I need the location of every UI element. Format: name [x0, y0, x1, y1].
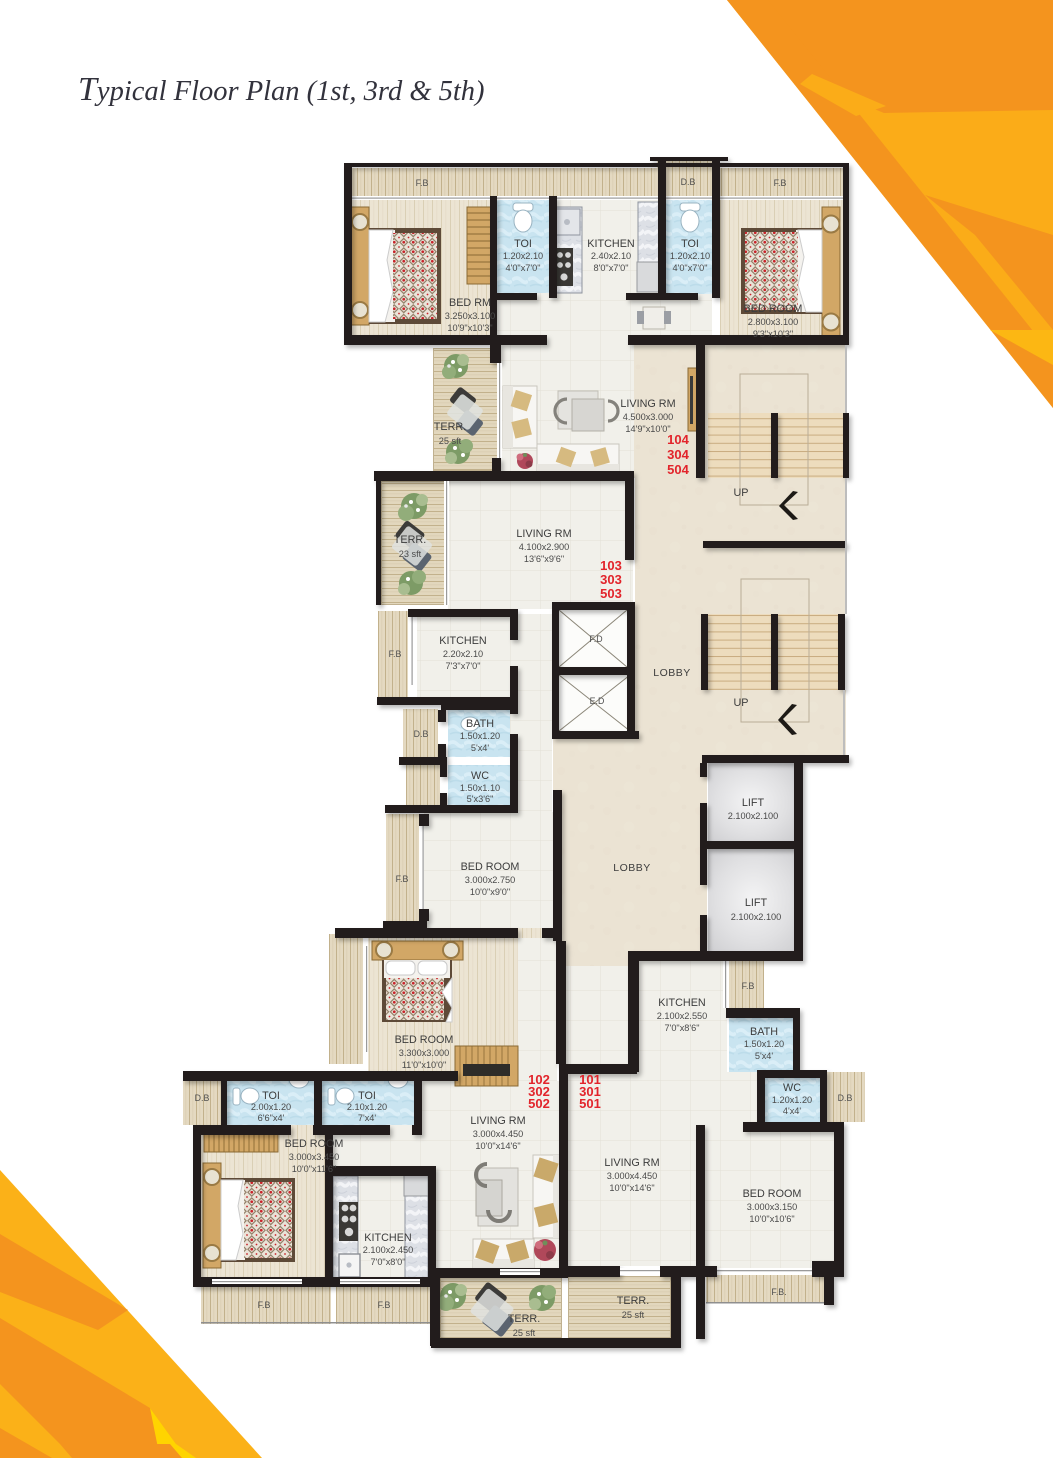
svg-text:3.000x3.450: 3.000x3.450	[289, 1152, 340, 1162]
svg-text:1.50x1.20: 1.50x1.20	[460, 731, 500, 741]
svg-text:TOI: TOI	[681, 238, 699, 250]
svg-text:501: 501	[579, 1096, 601, 1111]
svg-text:1.20x1.20: 1.20x1.20	[772, 1095, 812, 1105]
svg-text:D.B: D.B	[681, 177, 696, 187]
svg-text:BED ROOM: BED ROOM	[743, 1188, 802, 1200]
svg-text:103: 103	[600, 558, 622, 573]
svg-text:303: 303	[600, 572, 622, 587]
svg-text:1.20x2.10: 1.20x2.10	[503, 251, 543, 261]
svg-text:2.40x2.10: 2.40x2.10	[591, 251, 631, 261]
svg-text:TERR.: TERR.	[394, 534, 426, 546]
svg-text:KITCHEN: KITCHEN	[439, 635, 486, 647]
svg-text:2.10x1.20: 2.10x1.20	[347, 1102, 387, 1112]
svg-text:2.100x2.100: 2.100x2.100	[728, 811, 779, 821]
svg-text:LIVING RM: LIVING RM	[620, 398, 675, 410]
svg-text:F.B.: F.B.	[771, 1287, 786, 1297]
svg-text:E.D: E.D	[590, 696, 605, 706]
svg-text:3.300x3.000: 3.300x3.000	[399, 1048, 450, 1058]
svg-text:8'0"x7'0": 8'0"x7'0"	[593, 263, 628, 273]
svg-text:23 sft: 23 sft	[399, 549, 422, 559]
svg-text:10'0"x14'6": 10'0"x14'6"	[475, 1141, 520, 1151]
svg-text:7'x4': 7'x4'	[358, 1113, 377, 1123]
svg-text:2.00x1.20: 2.00x1.20	[251, 1102, 291, 1112]
svg-text:25 sft: 25 sft	[513, 1328, 536, 1338]
svg-text:BED ROOM: BED ROOM	[395, 1034, 454, 1046]
svg-text:3.000x4.450: 3.000x4.450	[473, 1129, 524, 1139]
svg-text:2.800x3.100: 2.800x3.100	[748, 317, 799, 327]
svg-text:KITCHEN: KITCHEN	[587, 238, 634, 250]
svg-text:2.100x2.550: 2.100x2.550	[657, 1011, 708, 1021]
svg-text:TOI: TOI	[514, 238, 532, 250]
svg-text:7'0"x8'0": 7'0"x8'0"	[370, 1257, 405, 1267]
svg-text:F.B: F.B	[258, 1300, 271, 1310]
svg-text:11'0"x10'0": 11'0"x10'0"	[402, 1060, 447, 1070]
svg-text:D.B: D.B	[838, 1093, 853, 1103]
svg-text:10'0"x9'0": 10'0"x9'0"	[470, 887, 510, 897]
svg-text:3.000x3.150: 3.000x3.150	[747, 1202, 798, 1212]
svg-text:502: 502	[528, 1096, 550, 1111]
svg-text:F.B: F.B	[378, 1300, 391, 1310]
svg-text:BATH: BATH	[750, 1026, 778, 1038]
svg-text:25 sft: 25 sft	[622, 1310, 645, 1320]
svg-text:1.50x1.20: 1.50x1.20	[744, 1039, 784, 1049]
svg-text:9'3"x10'3": 9'3"x10'3"	[753, 329, 793, 339]
svg-text:7'0"x8'6": 7'0"x8'6"	[664, 1023, 699, 1033]
svg-text:BATH: BATH	[466, 718, 494, 730]
svg-text:4.500x3.000: 4.500x3.000	[623, 412, 674, 422]
svg-text:KITCHEN: KITCHEN	[658, 997, 705, 1009]
svg-text:10'0"x14'6": 10'0"x14'6"	[609, 1183, 654, 1193]
svg-text:F.B: F.B	[774, 178, 787, 188]
svg-text:F.D: F.D	[589, 634, 602, 644]
svg-text:104: 104	[667, 432, 689, 447]
svg-text:3.000x4.450: 3.000x4.450	[607, 1171, 658, 1181]
svg-text:5'x3'6": 5'x3'6"	[467, 794, 494, 804]
svg-text:F.B: F.B	[742, 981, 755, 991]
svg-text:5'x4': 5'x4'	[471, 743, 490, 753]
svg-text:TOI: TOI	[262, 1090, 280, 1102]
svg-text:2.20x2.10: 2.20x2.10	[443, 649, 483, 659]
svg-text:KITCHEN: KITCHEN	[364, 1232, 411, 1244]
svg-text:LOBBY: LOBBY	[653, 667, 691, 679]
svg-text:4'0"x7'0": 4'0"x7'0"	[672, 263, 707, 273]
svg-text:5'x4': 5'x4'	[755, 1051, 774, 1061]
svg-text:TERR.: TERR.	[434, 421, 466, 433]
svg-text:6'6"x4': 6'6"x4'	[258, 1113, 285, 1123]
svg-text:WC: WC	[783, 1082, 801, 1094]
svg-text:2.100x2.450: 2.100x2.450	[363, 1245, 414, 1255]
svg-text:UP: UP	[734, 697, 749, 709]
svg-text:F.B: F.B	[416, 178, 429, 188]
svg-text:1.50x1.10: 1.50x1.10	[460, 783, 500, 793]
svg-text:Typical Floor Plan (1st, 3rd: Typical Floor Plan (1st, 3rd & 5th)	[78, 71, 485, 108]
svg-text:14'9"x10'0": 14'9"x10'0"	[625, 424, 670, 434]
svg-text:10'9"x10'3": 10'9"x10'3"	[447, 323, 492, 333]
svg-text:LIVING RM: LIVING RM	[604, 1157, 659, 1169]
svg-text:F.B: F.B	[396, 874, 409, 884]
svg-text:D.B: D.B	[414, 729, 429, 739]
svg-text:3.000x2.750: 3.000x2.750	[465, 875, 516, 885]
svg-text:3.250x3.100: 3.250x3.100	[445, 311, 496, 321]
svg-text:10'0"x10'6": 10'0"x10'6"	[749, 1214, 794, 1224]
svg-text:7'3"x7'0": 7'3"x7'0"	[445, 661, 480, 671]
svg-text:TERR.: TERR.	[508, 1313, 540, 1325]
svg-text:UP: UP	[734, 487, 749, 499]
svg-text:BED ROOM: BED ROOM	[461, 861, 520, 873]
svg-text:LIVING RM: LIVING RM	[516, 528, 571, 540]
svg-text:BED ROOM: BED ROOM	[285, 1138, 344, 1150]
svg-text:504: 504	[667, 462, 689, 477]
svg-text:1.20x2.10: 1.20x2.10	[670, 251, 710, 261]
svg-text:BED ROOM: BED ROOM	[744, 303, 803, 315]
svg-text:4'0"x7'0": 4'0"x7'0"	[505, 263, 540, 273]
svg-text:LIFT: LIFT	[742, 797, 765, 809]
svg-text:LIFT: LIFT	[745, 897, 768, 909]
svg-text:TOI: TOI	[358, 1090, 376, 1102]
svg-text:LIVING RM: LIVING RM	[470, 1115, 525, 1127]
svg-text:304: 304	[667, 447, 689, 462]
svg-text:503: 503	[600, 586, 622, 601]
svg-text:D.B: D.B	[195, 1093, 210, 1103]
svg-text:25 sft: 25 sft	[439, 436, 462, 446]
svg-text:4'x4': 4'x4'	[783, 1106, 802, 1116]
svg-text:TERR.: TERR.	[617, 1295, 649, 1307]
svg-text:13'6"x9'6": 13'6"x9'6"	[524, 554, 564, 564]
svg-text:4.100x2.900: 4.100x2.900	[519, 542, 570, 552]
svg-text:2.100x2.100: 2.100x2.100	[731, 912, 782, 922]
svg-text:LOBBY: LOBBY	[613, 862, 651, 874]
svg-text:BED RM: BED RM	[449, 297, 491, 309]
svg-text:WC: WC	[471, 770, 489, 782]
svg-text:10'0"x11'6": 10'0"x11'6"	[292, 1164, 337, 1174]
svg-text:F.B: F.B	[389, 649, 402, 659]
